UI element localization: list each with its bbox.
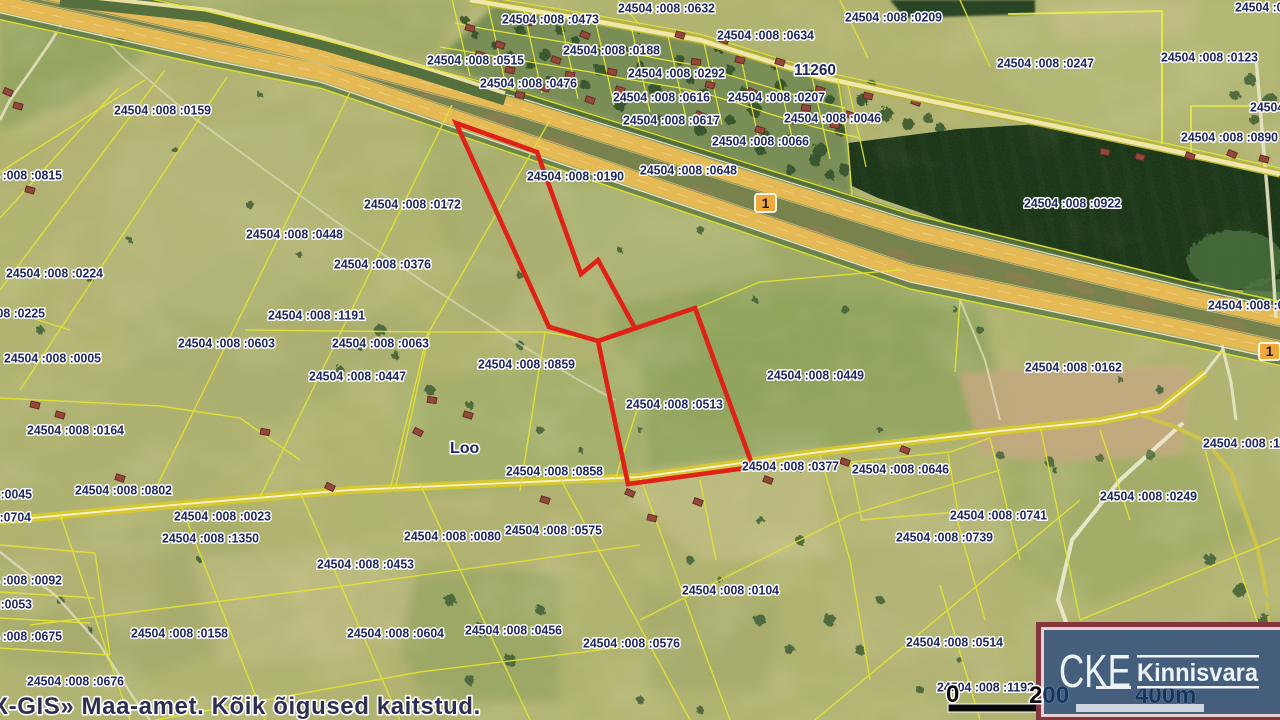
svg-text:24504 :008 :0859: 24504 :008 :0859: [478, 357, 575, 372]
svg-text:24504 :008 :0639: 24504 :008 :0639: [1235, 0, 1280, 15]
svg-text:24504 :008 :0207: 24504 :008 :0207: [728, 90, 825, 105]
svg-text:0: 0: [946, 681, 959, 708]
svg-text:24504 :008 :0188: 24504 :008 :0188: [563, 43, 660, 58]
svg-text:24504 :008 :1191: 24504 :008 :1191: [268, 308, 365, 323]
svg-text:24504 :008 :0225: 24504 :008 :0225: [0, 306, 45, 321]
svg-text:24504 :008 :0158: 24504 :008 :0158: [131, 626, 228, 641]
svg-text:24504 :008 :0046: 24504 :008 :0046: [784, 111, 881, 126]
svg-text:24504 :008 :0648: 24504 :008 :0648: [640, 163, 737, 178]
svg-text:11260: 11260: [794, 62, 836, 79]
svg-text:24504 :008 :0092: 24504 :008 :0092: [0, 573, 62, 588]
svg-text:24504 :008 :0449: 24504 :008 :0449: [767, 368, 864, 383]
svg-text:24504 :008 :1350: 24504 :008 :1350: [162, 531, 259, 546]
svg-text:CKE: CKE: [1059, 645, 1131, 697]
svg-text:24504 :008 :0063: 24504 :008 :0063: [332, 336, 429, 351]
svg-text:24504 :008 :0224: 24504 :008 :0224: [6, 266, 104, 281]
svg-text:24504 :008 :0616: 24504 :008 :0616: [613, 90, 710, 105]
svg-text:1: 1: [1266, 343, 1274, 359]
svg-text:24504 :008 :0376: 24504 :008 :0376: [334, 257, 431, 272]
svg-text:24504 :008 :0209: 24504 :008 :0209: [845, 10, 942, 25]
svg-text:Loo: Loo: [450, 440, 480, 457]
svg-text:24504 :008 :0249: 24504 :008 :0249: [1100, 489, 1197, 504]
svg-text:24504 :008 :0162: 24504 :008 :0162: [1025, 360, 1122, 375]
svg-text:24504 :008 :0453: 24504 :008 :0453: [317, 557, 414, 572]
svg-text:24504 :008 :0575: 24504 :008 :0575: [505, 523, 602, 538]
svg-text:24504 :008 :0104: 24504 :008 :0104: [682, 583, 780, 598]
svg-text:24504 :008 :0066: 24504 :008 :0066: [712, 134, 809, 149]
svg-text:24504 :008 :0858: 24504 :008 :0858: [506, 464, 603, 479]
svg-text:24504 :008 :0741: 24504 :008 :0741: [950, 508, 1047, 523]
svg-text:24504 :008 :0617: 24504 :008 :0617: [623, 113, 720, 128]
svg-text:24504 :008 :0476: 24504 :008 :0476: [480, 76, 577, 91]
svg-text:24504 :008 :0447: 24504 :008 :0447: [309, 369, 406, 384]
svg-text:24504 :008 :0005: 24504 :008 :0005: [4, 351, 101, 366]
svg-text:24504 :008 :0634: 24504 :008 :0634: [717, 28, 815, 43]
svg-text:24504 :008 :0448: 24504 :008 :0448: [246, 227, 343, 242]
svg-text:24504 :008 :0080: 24504 :008 :0080: [404, 529, 501, 544]
svg-text:24504 :008 :0676: 24504 :008 :0676: [27, 674, 124, 689]
svg-text:24504 :008 :0704: 24504 :008 :0704: [0, 510, 32, 525]
svg-text:24504 :008 :0922: 24504 :008 :0922: [1024, 196, 1121, 211]
svg-text:24504 :008 :0377: 24504 :008 :0377: [742, 459, 839, 474]
svg-text:24504 :008 :1135: 24504 :008 :1135: [1203, 436, 1280, 451]
svg-text:24504 :008 :0603: 24504 :008 :0603: [178, 336, 275, 351]
svg-text:24504 :008 :0172: 24504 :008 :0172: [364, 197, 461, 212]
svg-text:24504 :008 :0513: 24504 :008 :0513: [626, 397, 723, 412]
svg-text:24504 :008 :0123: 24504 :008 :0123: [1161, 50, 1258, 65]
svg-text:X-GIS» Maa-amet. Kõik õigused: X-GIS» Maa-amet. Kõik õigused kaitstud.: [0, 693, 481, 720]
svg-text:24504 :008 :0921: 24504 :008 :0921: [1208, 298, 1280, 313]
svg-text:24504 :008 :0604: 24504 :008 :0604: [347, 626, 445, 641]
svg-text:24504 :008 :0514: 24504 :008 :0514: [906, 635, 1004, 650]
svg-text:24504 :008 :0802: 24504 :008 :0802: [75, 483, 172, 498]
svg-text:24504 :008 :0675: 24504 :008 :0675: [0, 629, 62, 644]
svg-text:24504 :008 :0023: 24504 :008 :0023: [174, 509, 271, 524]
svg-text:24504 :008 :0190: 24504 :008 :0190: [527, 169, 624, 184]
svg-text:24504 :008 :0159: 24504 :008 :0159: [114, 103, 211, 118]
svg-text:24504 :008 :0292: 24504 :008 :0292: [628, 66, 725, 81]
svg-text:24504 :008 :0890: 24504 :008 :0890: [1181, 130, 1278, 145]
svg-text:24504 :008 :0045: 24504 :008 :0045: [0, 487, 32, 502]
svg-text:24504 :008 :0815: 24504 :008 :0815: [0, 168, 62, 183]
svg-text:24504 :008 :0473: 24504 :008 :0473: [502, 12, 599, 27]
svg-text:24504 :008 :0053: 24504 :008 :0053: [0, 597, 32, 612]
svg-text:24504 :008 :0888: 24504 :008 :0888: [1250, 100, 1280, 115]
svg-text:24504 :008 :0515: 24504 :008 :0515: [427, 53, 524, 68]
svg-text:24504 :008 :0456: 24504 :008 :0456: [465, 623, 562, 638]
svg-text:24504 :008 :0164: 24504 :008 :0164: [27, 423, 125, 438]
svg-text:24504 :008 :0576: 24504 :008 :0576: [583, 636, 680, 651]
svg-text:24504 :008 :0247: 24504 :008 :0247: [997, 56, 1094, 71]
svg-text:24504 :008 :0632: 24504 :008 :0632: [618, 1, 715, 16]
svg-text:1: 1: [762, 195, 770, 211]
svg-text:24504 :008 :0646: 24504 :008 :0646: [852, 462, 949, 477]
svg-text:Kinnisvara: Kinnisvara: [1137, 659, 1259, 687]
svg-text:24504 :008 :0739: 24504 :008 :0739: [896, 530, 993, 545]
